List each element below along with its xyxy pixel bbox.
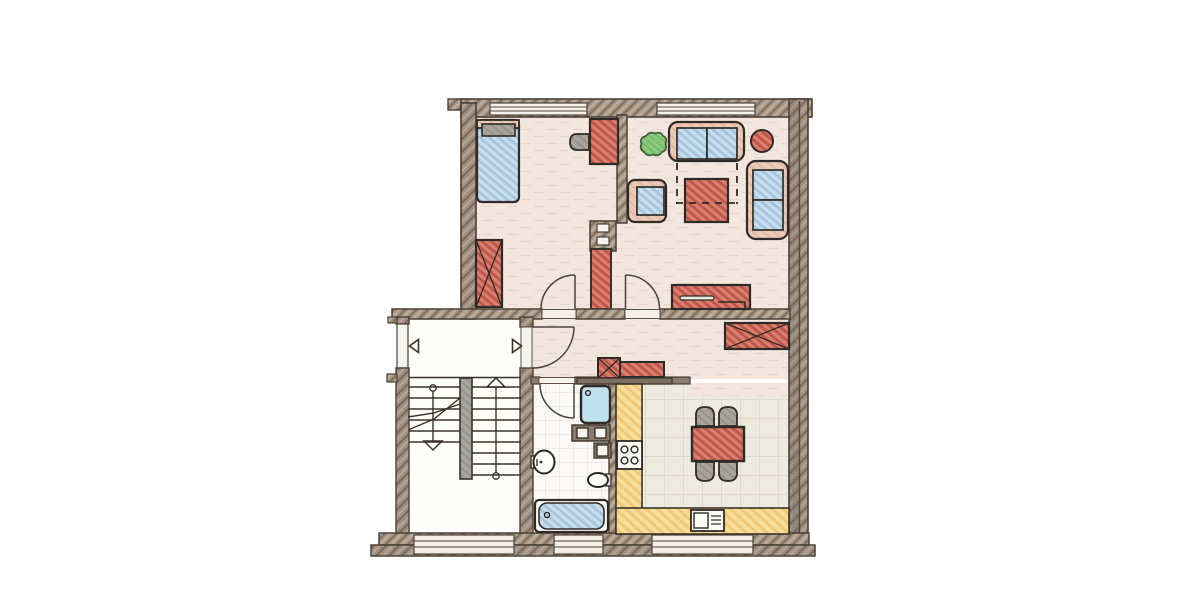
svg-text:illustration@annagrafik: illustration@annagrafik: [791, 448, 800, 530]
